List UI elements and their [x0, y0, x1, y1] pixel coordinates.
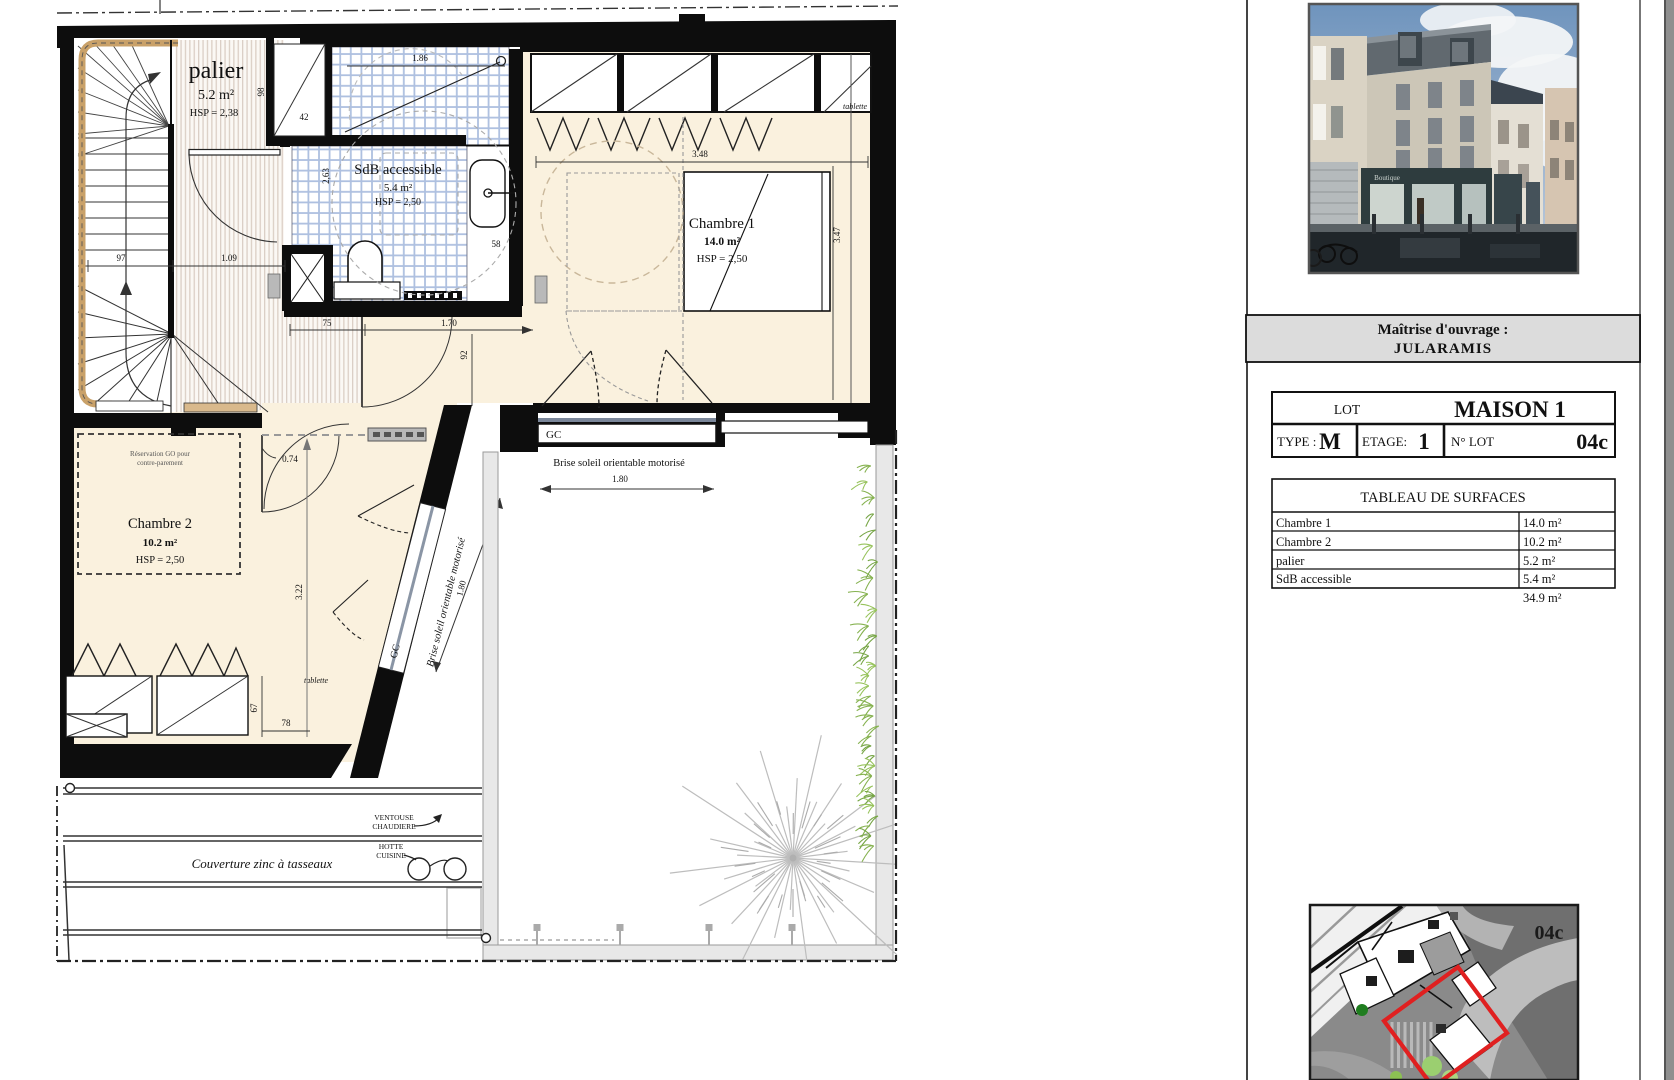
svg-text:67: 67: [249, 703, 259, 713]
svg-text:04c: 04c: [1576, 429, 1608, 454]
svg-text:tablette: tablette: [843, 102, 867, 111]
svg-text:SdB accessible: SdB accessible: [354, 162, 441, 178]
svg-text:M: M: [1319, 429, 1341, 454]
svg-text:5.4 m²: 5.4 m²: [1523, 572, 1555, 586]
svg-text:CUISINE: CUISINE: [376, 851, 406, 860]
svg-text:42: 42: [300, 112, 309, 122]
svg-text:Maîtrise d'ouvrage :: Maîtrise d'ouvrage :: [1378, 322, 1509, 338]
svg-text:14.0 m²: 14.0 m²: [704, 236, 741, 248]
svg-text:1: 1: [1418, 429, 1430, 454]
svg-text:34.9 m²: 34.9 m²: [1523, 591, 1562, 605]
svg-text:LOT: LOT: [1334, 402, 1361, 417]
svg-text:TABLEAU DE SURFACES: TABLEAU DE SURFACES: [1360, 490, 1525, 506]
svg-text:1.86: 1.86: [412, 53, 428, 63]
svg-text:tablette: tablette: [304, 676, 328, 685]
svg-text:JULARAMIS: JULARAMIS: [1394, 341, 1492, 357]
svg-text:HSP = 2,38: HSP = 2,38: [190, 108, 238, 119]
svg-text:ETAGE:: ETAGE:: [1362, 434, 1407, 449]
svg-text:98: 98: [256, 87, 266, 97]
svg-text:Brise soleil orientable motori: Brise soleil orientable motorisé: [553, 458, 685, 469]
svg-text:3.22: 3.22: [294, 584, 304, 600]
svg-text:5.4 m²: 5.4 m²: [384, 182, 413, 194]
svg-text:TYPE :: TYPE :: [1277, 434, 1316, 449]
svg-text:HOTTE: HOTTE: [379, 842, 404, 851]
svg-text:Chambre 1: Chambre 1: [1276, 516, 1331, 530]
svg-text:palier: palier: [189, 58, 244, 84]
svg-text:VENTOUSE: VENTOUSE: [374, 813, 414, 822]
svg-text:5.2 m²: 5.2 m²: [198, 88, 234, 103]
svg-text:Chambre 1: Chambre 1: [689, 216, 755, 232]
svg-text:92: 92: [459, 351, 469, 360]
svg-text:2,63: 2,63: [321, 168, 331, 184]
svg-text:SdB accessible: SdB accessible: [1276, 572, 1352, 586]
svg-text:78: 78: [282, 718, 292, 728]
svg-text:5.2 m²: 5.2 m²: [1523, 554, 1555, 568]
svg-text:1.80: 1.80: [612, 474, 628, 484]
svg-text:HSP = 2,50: HSP = 2,50: [136, 555, 184, 566]
svg-text:HSP = 2,50: HSP = 2,50: [697, 253, 748, 265]
svg-text:14.0 m²: 14.0 m²: [1523, 516, 1562, 530]
svg-text:10.2 m²: 10.2 m²: [1523, 535, 1562, 549]
svg-text:N° LOT: N° LOT: [1451, 434, 1494, 449]
svg-text:Boutique: Boutique: [1374, 174, 1400, 182]
svg-text:palier: palier: [1276, 554, 1305, 568]
svg-text:Chambre 2: Chambre 2: [1276, 535, 1331, 549]
svg-text:Réservation GO pour: Réservation GO pour: [130, 450, 191, 458]
svg-text:58: 58: [492, 239, 502, 249]
svg-text:1.09: 1.09: [221, 253, 237, 263]
svg-text:GC: GC: [546, 429, 561, 441]
svg-text:HSP = 2,50: HSP = 2,50: [375, 197, 421, 208]
svg-text:3.47: 3.47: [832, 227, 842, 243]
svg-text:Chambre 2: Chambre 2: [128, 516, 192, 532]
svg-text:1.70: 1.70: [441, 318, 457, 328]
svg-text:04c: 04c: [1535, 922, 1564, 944]
svg-text:97: 97: [117, 253, 127, 263]
svg-text:Couverture zinc à tasseaux: Couverture zinc à tasseaux: [192, 856, 333, 871]
svg-text:3.48: 3.48: [692, 149, 708, 159]
svg-text:contre-parement: contre-parement: [137, 459, 183, 467]
svg-text:10.2 m²: 10.2 m²: [143, 537, 178, 549]
svg-text:MAISON 1: MAISON 1: [1454, 397, 1566, 422]
svg-text:0.74: 0.74: [282, 454, 298, 464]
svg-text:75: 75: [323, 318, 333, 328]
svg-text:CHAUDIERE: CHAUDIERE: [372, 822, 416, 831]
